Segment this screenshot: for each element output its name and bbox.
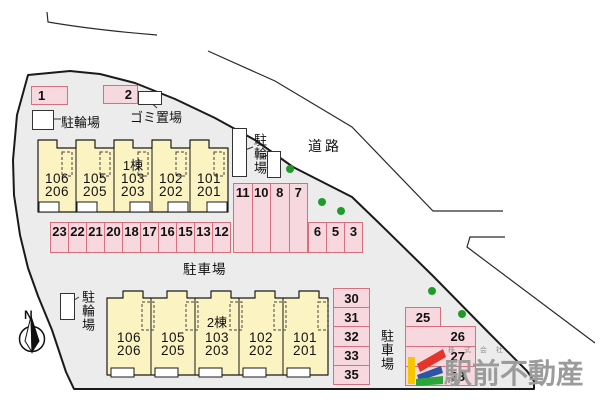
bicycle-parking-ne-label: 駐輪場 [250,133,269,181]
parking-spot-26: 26 [405,326,476,347]
spot-number: 26 [451,329,465,344]
spot-number: 2 [125,87,132,102]
road-line-north [47,12,157,35]
parking-col-west: 30 31 32 33 35 [333,288,370,385]
parking-spot: 17 [141,223,159,252]
parking-spot: 20 [105,223,123,252]
garbage-area-box [138,91,162,105]
compass-north-label: N [24,308,33,322]
spot-number: 1 [38,88,45,103]
tree-dot [286,165,294,173]
parking-spot: 35 [334,366,369,384]
parking-spot-1: 1 [31,86,68,105]
building-1-unit-label: 103 203 [114,172,152,198]
parking-spot: 23 [51,223,69,252]
parking-spot: 15 [177,223,195,252]
parking-lot-label: 駐車場 [183,258,227,278]
building-1-unit-label: 102 202 [152,172,190,198]
bicycle-parking-sw-label: 駐輪場 [78,290,97,338]
bicycle-parking-ne-box-b [267,151,281,178]
parking-spot: 3 [345,223,362,252]
tree-dot [428,287,436,295]
building-2-unit-label: 106 206 [107,331,151,357]
road-label: 道路 [308,136,342,156]
parking-lot-label-south: 駐車場 [377,329,396,377]
bicycle-parking-sw-box [60,293,75,320]
bicycle-parking-nw-box [32,110,54,130]
tree-dot [337,207,345,215]
parking-block-small: 6 5 3 [308,222,363,253]
road-line-southeast [467,237,595,343]
building-1-unit-label: 101 201 [190,172,228,198]
building-1-unit-label: 106 206 [38,172,76,198]
parking-spot: 30 [334,289,369,308]
parking-spot: 18 [123,223,141,252]
parking-spot: 13 [195,223,213,252]
parking-spot-25: 25 [405,307,441,327]
parking-spot: 16 [159,223,177,252]
company-name-label: 駅前不動産 [444,352,584,392]
parking-spot: 11 [234,184,253,252]
parking-spot: 7 [290,184,308,252]
parking-row-main: 23 22 21 20 18 17 16 15 13 12 [50,222,231,253]
parking-spot: 6 [309,223,327,252]
garbage-area-label: ゴミ置場 [130,107,182,126]
tree-dot [458,310,466,318]
building-2-unit-label: 101 201 [283,331,327,357]
tree-dot [318,198,326,206]
parking-spot: 5 [327,223,345,252]
site-plan: 道路 N 1 2 ゴミ置場 駐輪場 駐輪場 駐輪場 1棟 106 206 105… [0,0,600,400]
parking-spot: 8 [271,184,290,252]
parking-spot-2: 2 [103,85,138,104]
building-2-name: 2棟 [195,312,239,331]
parking-spot: 22 [69,223,87,252]
building-2-unit-label: 103 203 [195,331,239,357]
parking-block-tall: 11 10 8 7 [233,183,308,253]
bicycle-parking-ne-box-a [232,128,247,177]
building-1-unit-label: 105 205 [76,172,114,198]
spot-number: 25 [416,310,430,325]
parking-spot: 33 [334,347,369,366]
building-2-unit-label: 105 205 [151,331,195,357]
building-2-unit-label: 102 202 [239,331,283,357]
parking-spot: 12 [213,223,230,252]
parking-spot: 31 [334,308,369,327]
parking-spot: 10 [253,184,272,252]
bicycle-parking-nw-label: 駐輪場 [61,112,100,131]
parking-spot: 21 [87,223,105,252]
parking-spot: 32 [334,327,369,346]
